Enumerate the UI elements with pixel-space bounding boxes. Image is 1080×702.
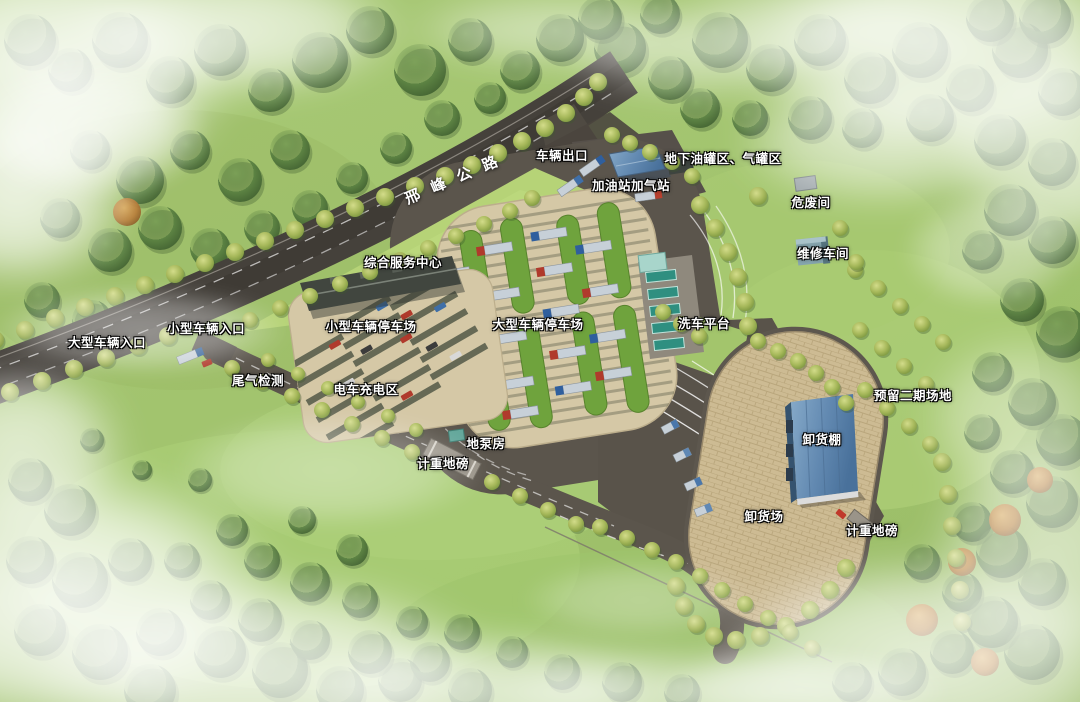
site-plan-rendering (0, 0, 1080, 702)
unloading-shed-building (785, 394, 866, 508)
maintenance-building (796, 236, 831, 266)
site-plan: 邢峰公路 车辆出口 地下油罐区、气罐区 加油站加气站 危废间 维修车间 综合服务… (0, 0, 1080, 702)
